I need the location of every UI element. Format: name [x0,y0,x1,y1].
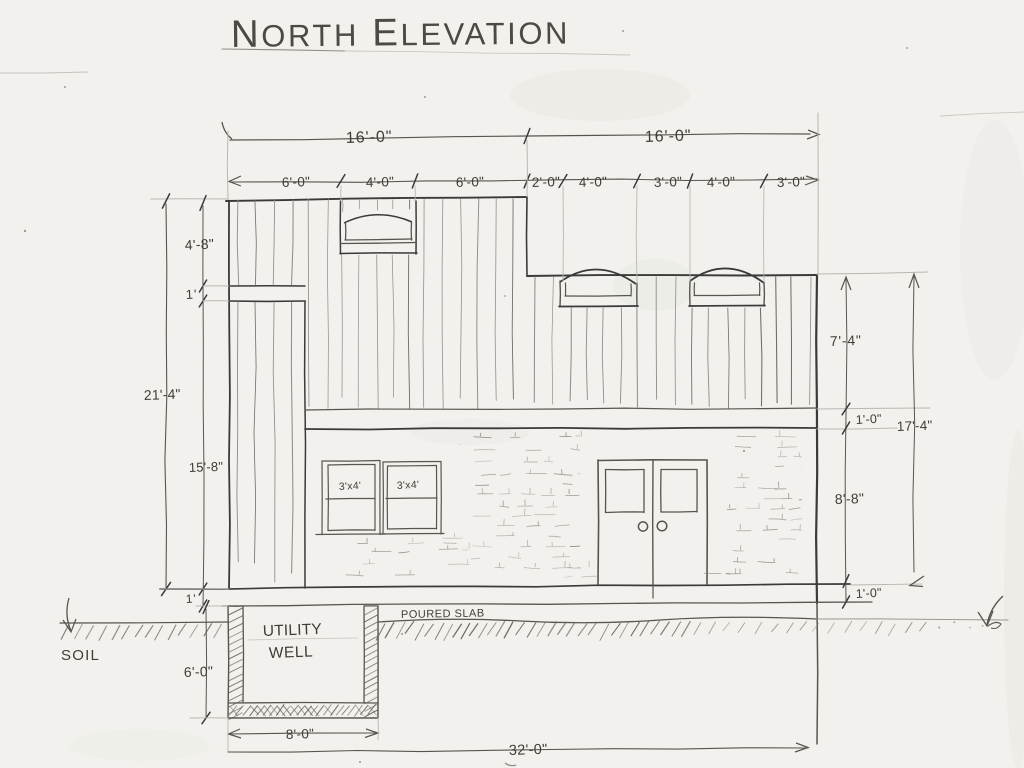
svg-text:3'x4': 3'x4' [397,479,420,492]
svg-text:3'-0": 3'-0" [777,174,806,190]
svg-text:1': 1' [185,591,197,606]
svg-text:16'-0": 16'-0" [645,127,692,146]
svg-text:8'-8": 8'-8" [835,490,865,507]
svg-text:3'-0": 3'-0" [654,174,683,190]
svg-text:3'x4': 3'x4' [339,480,362,493]
svg-text:2'-0": 2'-0" [532,174,561,190]
svg-text:32'-0": 32'-0" [509,742,548,759]
svg-text:1'-0": 1'-0" [855,586,882,601]
svg-text:21'-4": 21'-4" [144,386,181,403]
svg-text:POURED SLAB: POURED SLAB [401,608,485,621]
svg-text:1'-0": 1'-0" [855,412,882,427]
svg-text:16'-0": 16'-0" [346,128,393,147]
svg-text:6'-0": 6'-0" [282,174,311,190]
svg-text:15'-8": 15'-8" [189,459,224,475]
svg-text:UTILITY: UTILITY [263,621,323,640]
svg-text:17'-4": 17'-4" [897,418,933,434]
svg-text:6'-0": 6'-0" [456,174,485,190]
svg-text:4'-8": 4'-8" [184,235,214,253]
svg-text:4'-0": 4'-0" [579,174,608,190]
svg-text:1': 1' [185,286,197,302]
svg-text:WELL: WELL [269,643,314,662]
svg-text:4'-0": 4'-0" [366,174,395,190]
svg-text:6'-0": 6'-0" [184,663,214,680]
svg-text:SOIL: SOIL [61,647,100,664]
svg-text:7'-4": 7'-4" [830,332,862,349]
svg-text:8'-0": 8'-0" [286,726,315,742]
svg-text:4'-0": 4'-0" [707,174,736,190]
